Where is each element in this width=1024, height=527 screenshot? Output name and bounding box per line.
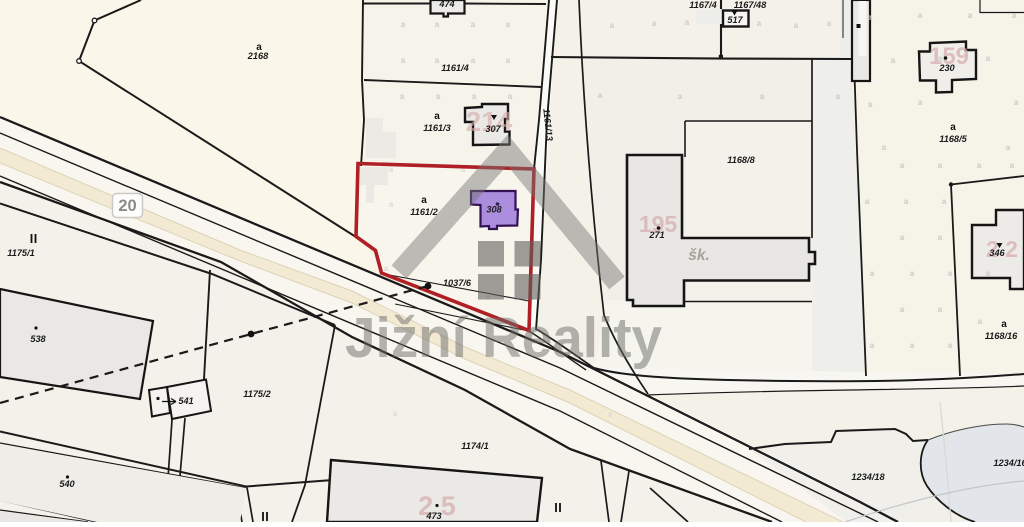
svg-text:a: a xyxy=(506,56,511,65)
svg-text:a: a xyxy=(256,42,262,53)
svg-text:a: a xyxy=(918,98,923,107)
svg-text:a: a xyxy=(608,410,613,419)
svg-text:a: a xyxy=(1010,161,1015,170)
svg-text:308: 308 xyxy=(486,205,502,215)
svg-text:a: a xyxy=(865,197,870,206)
svg-text:a: a xyxy=(401,56,406,65)
svg-text:a: a xyxy=(870,269,875,278)
svg-text:a: a xyxy=(760,92,765,101)
svg-text:a: a xyxy=(1006,143,1011,152)
svg-text:a: a xyxy=(471,56,476,65)
svg-text:a: a xyxy=(384,264,389,273)
svg-text:a: a xyxy=(685,18,690,27)
svg-text:a: a xyxy=(506,20,511,29)
svg-text:a: a xyxy=(938,305,943,314)
svg-text:a: a xyxy=(900,305,905,314)
svg-text:a: a xyxy=(870,341,875,350)
svg-text:a: a xyxy=(652,19,657,28)
svg-text:a: a xyxy=(827,19,832,28)
svg-text:a: a xyxy=(942,197,947,206)
svg-text:a: a xyxy=(434,111,440,122)
svg-text:a: a xyxy=(794,21,799,30)
svg-text:a: a xyxy=(950,122,956,133)
svg-text:1234/18: 1234/18 xyxy=(851,472,885,482)
svg-text:517: 517 xyxy=(727,15,743,25)
svg-text:a: a xyxy=(421,195,427,206)
svg-text:346: 346 xyxy=(989,248,1005,258)
svg-text:šk.: šk. xyxy=(688,247,710,264)
svg-text:1167/4: 1167/4 xyxy=(689,0,716,10)
svg-text:1161/3: 1161/3 xyxy=(423,123,450,133)
svg-text:a: a xyxy=(977,161,982,170)
svg-text:a: a xyxy=(938,233,943,242)
svg-text:1234/16: 1234/16 xyxy=(993,458,1024,468)
svg-text:230: 230 xyxy=(938,63,955,73)
svg-text:a: a xyxy=(968,11,973,20)
svg-text:1161/2: 1161/2 xyxy=(410,207,438,217)
svg-text:a: a xyxy=(910,341,915,350)
svg-text:a: a xyxy=(389,200,394,209)
svg-text:a: a xyxy=(435,20,440,29)
svg-text:a: a xyxy=(1014,98,1019,107)
svg-text:a: a xyxy=(471,20,476,29)
svg-text:a: a xyxy=(508,92,513,101)
svg-text:473: 473 xyxy=(425,511,441,521)
svg-text:474: 474 xyxy=(438,0,454,9)
svg-text:a: a xyxy=(401,20,406,29)
svg-text:a: a xyxy=(938,161,943,170)
svg-text:1161/4: 1161/4 xyxy=(441,63,468,73)
svg-text:541: 541 xyxy=(178,396,193,406)
svg-text:540: 540 xyxy=(59,479,75,489)
svg-text:a: a xyxy=(900,161,905,170)
svg-text:a: a xyxy=(836,92,841,101)
svg-text:a: a xyxy=(918,11,923,20)
svg-text:a: a xyxy=(678,92,683,101)
svg-text:1168/16: 1168/16 xyxy=(985,331,1018,341)
svg-text:a: a xyxy=(1012,11,1017,20)
svg-text:a: a xyxy=(435,56,440,65)
svg-text:a: a xyxy=(393,409,398,418)
svg-text:a: a xyxy=(904,197,909,206)
svg-text:1168/8: 1168/8 xyxy=(727,155,755,165)
svg-text:1167/48: 1167/48 xyxy=(734,0,767,10)
svg-text:a: a xyxy=(868,100,873,109)
svg-text:a: a xyxy=(948,269,953,278)
svg-text:a: a xyxy=(910,269,915,278)
svg-text:a: a xyxy=(882,143,887,152)
svg-text:a: a xyxy=(472,92,477,101)
svg-text:a: a xyxy=(986,54,991,63)
svg-text:307: 307 xyxy=(485,124,501,134)
svg-text:1168/5: 1168/5 xyxy=(939,134,967,144)
svg-text:a: a xyxy=(978,317,983,326)
svg-text:538: 538 xyxy=(30,334,46,344)
svg-text:1037/6: 1037/6 xyxy=(443,278,472,288)
svg-text:a: a xyxy=(948,341,953,350)
svg-text:a: a xyxy=(598,91,603,100)
svg-text:a: a xyxy=(757,19,762,28)
svg-text:271: 271 xyxy=(648,230,664,240)
svg-text:20: 20 xyxy=(118,197,136,215)
svg-text:1174/1: 1174/1 xyxy=(461,441,488,451)
svg-text:a: a xyxy=(610,21,615,30)
svg-text:a: a xyxy=(891,56,896,65)
svg-text:a: a xyxy=(400,92,405,101)
svg-text:a: a xyxy=(436,92,441,101)
svg-text:a: a xyxy=(1001,319,1007,330)
svg-text:1175/2: 1175/2 xyxy=(243,389,271,399)
svg-text:1175/1: 1175/1 xyxy=(7,248,34,258)
svg-text:a: a xyxy=(900,233,905,242)
svg-text:a: a xyxy=(868,13,873,22)
svg-text:a: a xyxy=(986,269,991,278)
svg-text:Jižní Reality: Jižní Reality xyxy=(345,306,662,370)
